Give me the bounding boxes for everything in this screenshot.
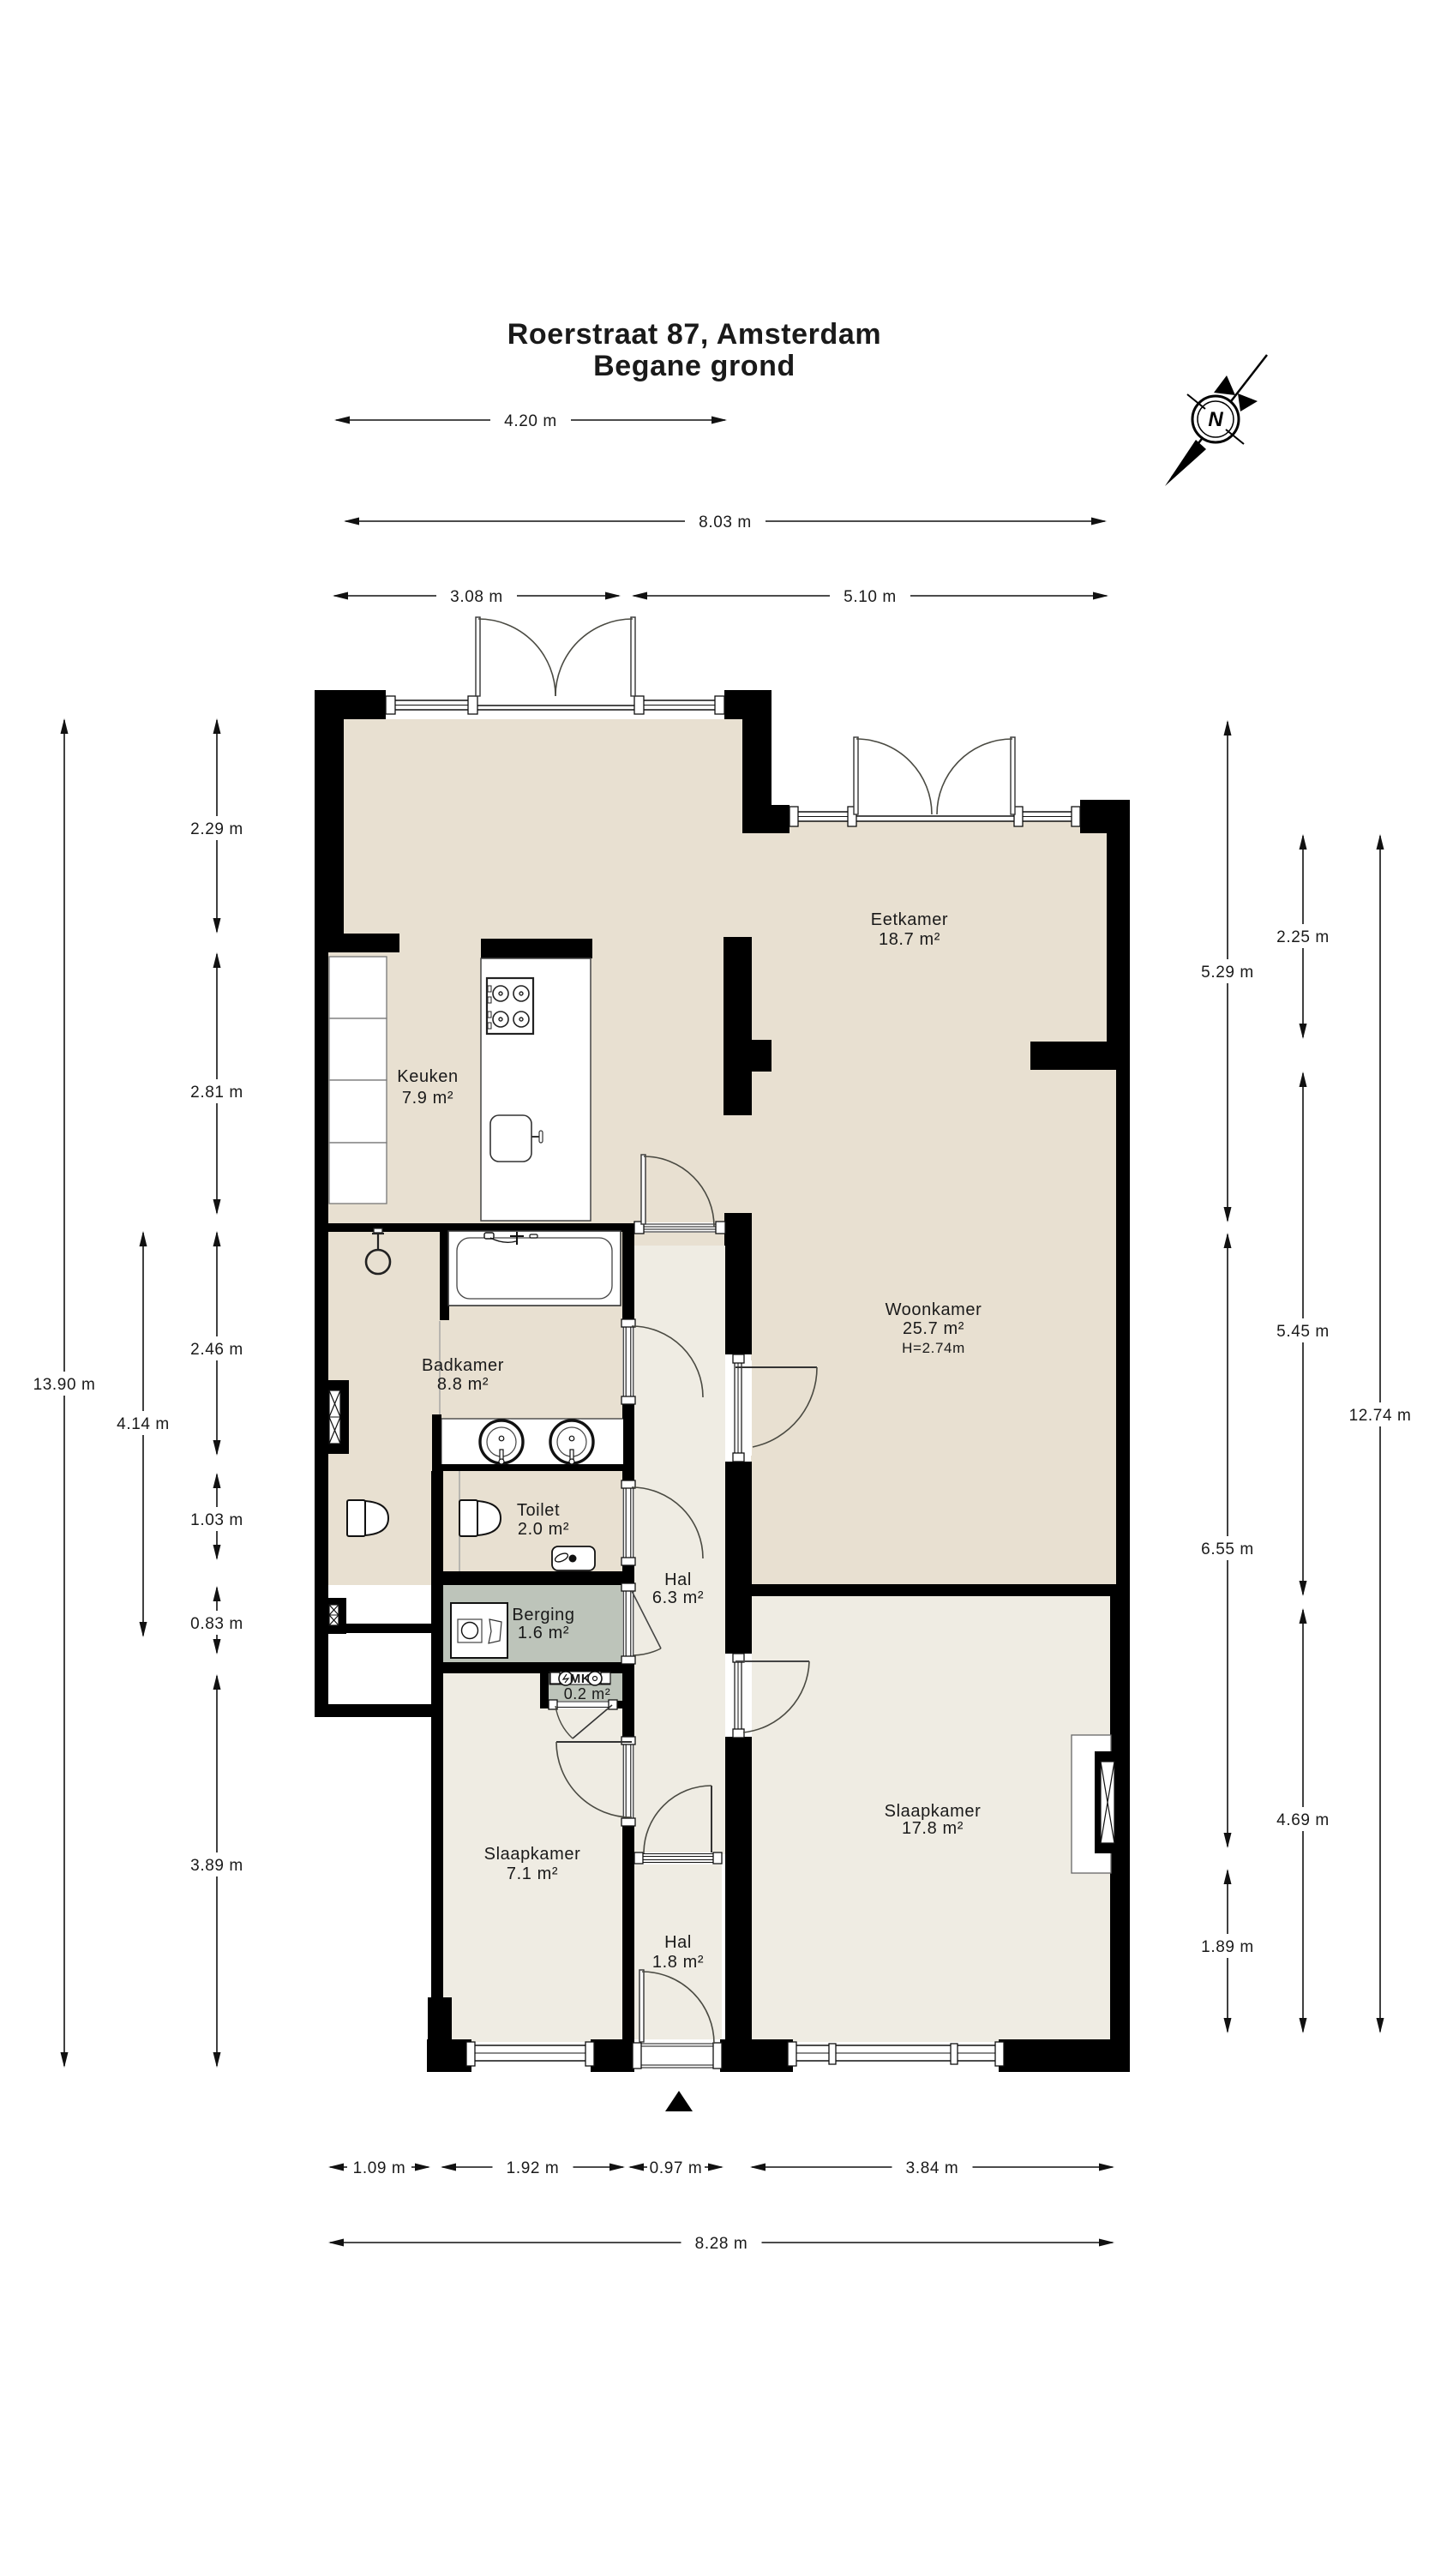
svg-text:1.09 m: 1.09 m [353, 2159, 406, 2177]
svg-text:0.83 m: 0.83 m [190, 1615, 243, 1633]
svg-text:2.29 m: 2.29 m [190, 820, 243, 838]
svg-text:4.69 m: 4.69 m [1276, 1811, 1330, 1829]
svg-text:Slaapkamer: Slaapkamer [885, 1802, 982, 1821]
svg-text:1.89 m: 1.89 m [1201, 1938, 1254, 1956]
svg-text:17.8 m²: 17.8 m² [902, 1819, 964, 1838]
svg-text:4.20 m: 4.20 m [504, 412, 557, 430]
svg-text:Badkamer: Badkamer [422, 1356, 504, 1375]
svg-text:3.08 m: 3.08 m [450, 588, 503, 606]
svg-text:7.1 m²: 7.1 m² [507, 1864, 558, 1883]
svg-text:Toilet: Toilet [517, 1501, 560, 1520]
svg-text:6.3 m²: 6.3 m² [652, 1588, 704, 1607]
svg-text:3.89 m: 3.89 m [190, 1857, 243, 1875]
svg-text:2.0 m²: 2.0 m² [518, 1520, 569, 1539]
svg-text:Hal: Hal [664, 1570, 692, 1589]
svg-text:18.7 m²: 18.7 m² [879, 930, 940, 949]
svg-text:5.10 m: 5.10 m [844, 588, 897, 606]
svg-text:1.92 m: 1.92 m [507, 2159, 560, 2177]
svg-text:N: N [1208, 408, 1223, 431]
svg-text:8.8 m²: 8.8 m² [437, 1375, 489, 1394]
svg-text:5.29 m: 5.29 m [1201, 964, 1254, 982]
svg-text:8.28 m: 8.28 m [695, 2235, 748, 2253]
svg-text:8.03 m: 8.03 m [699, 513, 752, 531]
svg-text:MK: MK [570, 1672, 591, 1686]
svg-text:12.74 m: 12.74 m [1349, 1407, 1412, 1425]
svg-text:Eetkamer: Eetkamer [871, 910, 948, 929]
svg-text:7.9 m²: 7.9 m² [402, 1089, 453, 1108]
svg-text:Roerstraat 87, Amsterdam: Roerstraat 87, Amsterdam [507, 318, 881, 351]
svg-text:Hal: Hal [664, 1933, 692, 1952]
svg-text:13.90 m: 13.90 m [33, 1376, 96, 1394]
svg-text:4.14 m: 4.14 m [117, 1415, 170, 1433]
svg-text:Berging: Berging [512, 1606, 574, 1624]
svg-text:1.03 m: 1.03 m [190, 1511, 243, 1529]
svg-text:Begane grond: Begane grond [593, 350, 796, 382]
svg-text:0.2 m²: 0.2 m² [564, 1685, 611, 1702]
svg-text:0.97 m: 0.97 m [650, 2159, 703, 2177]
svg-text:1.8 m²: 1.8 m² [652, 1953, 704, 1972]
svg-text:H=2.74m: H=2.74m [902, 1340, 965, 1356]
svg-text:5.45 m: 5.45 m [1276, 1323, 1330, 1341]
svg-text:Keuken: Keuken [397, 1067, 458, 1086]
svg-text:2.81 m: 2.81 m [190, 1084, 243, 1102]
svg-text:Woonkamer: Woonkamer [886, 1300, 982, 1319]
svg-text:Slaapkamer: Slaapkamer [484, 1845, 581, 1864]
svg-text:2.46 m: 2.46 m [190, 1341, 243, 1359]
svg-text:25.7 m²: 25.7 m² [903, 1319, 964, 1338]
svg-text:6.55 m: 6.55 m [1201, 1540, 1254, 1558]
svg-text:3.84 m: 3.84 m [906, 2159, 959, 2177]
svg-text:1.6 m²: 1.6 m² [518, 1624, 569, 1642]
svg-text:2.25 m: 2.25 m [1276, 928, 1330, 946]
